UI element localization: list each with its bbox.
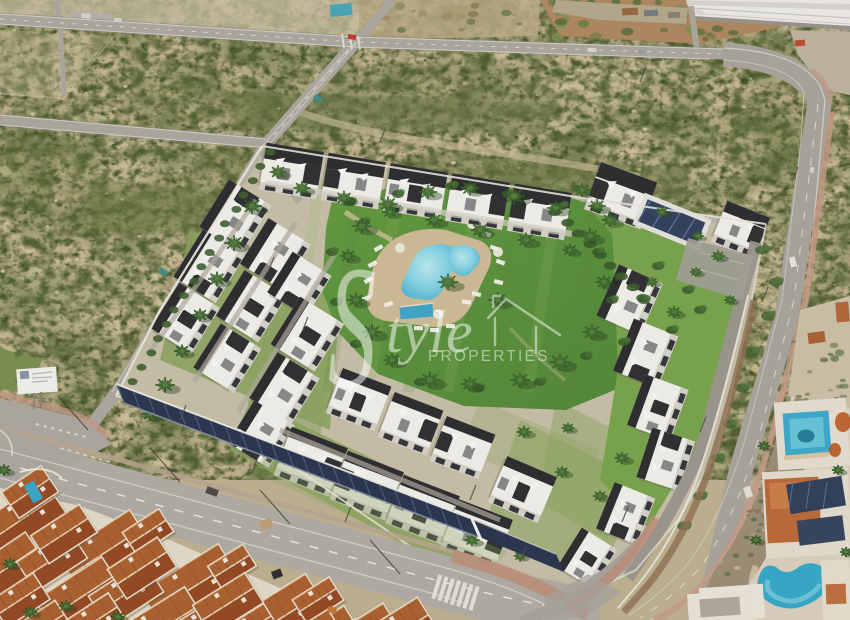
svg-text:PROPERTIES: PROPERTIES xyxy=(428,348,550,365)
svg-text:S: S xyxy=(328,229,376,425)
